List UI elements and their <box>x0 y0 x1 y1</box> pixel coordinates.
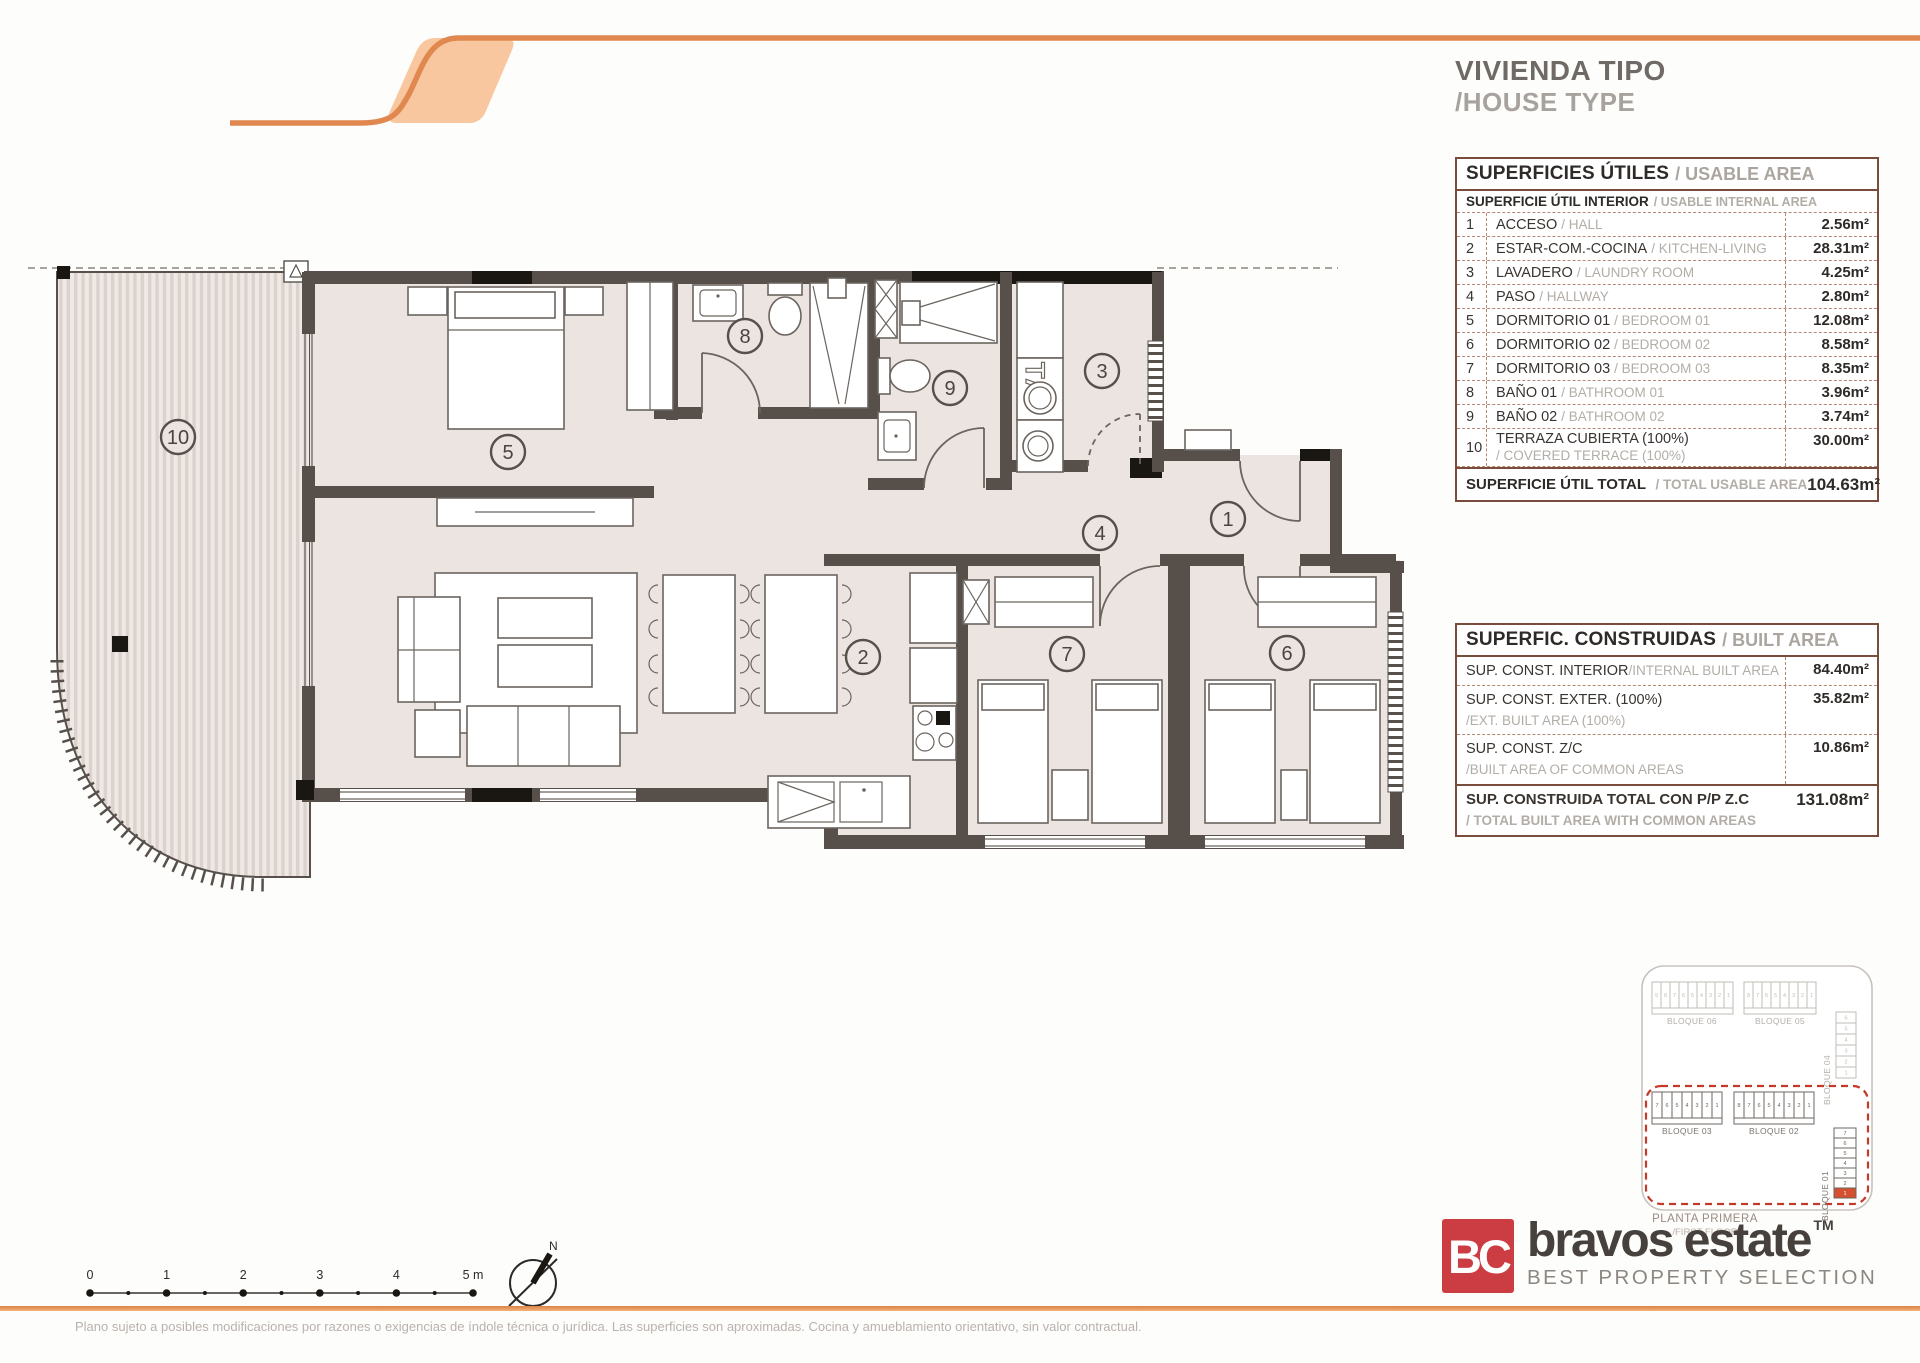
svg-text:9: 9 <box>1655 993 1658 999</box>
compass-icon: N <box>509 1239 558 1306</box>
svg-text:9: 9 <box>944 378 955 400</box>
table-row: 1 ACCESO/ HALL 2.56m² <box>1457 213 1877 237</box>
svg-text:4: 4 <box>1685 1103 1688 1109</box>
svg-text:5: 5 <box>1691 993 1694 999</box>
svg-text:1: 1 <box>1715 1103 1718 1109</box>
svg-text:6: 6 <box>1765 993 1768 999</box>
title-en: /HOUSE TYPE <box>1455 87 1666 118</box>
svg-text:6: 6 <box>1843 1141 1846 1147</box>
svg-text:4: 4 <box>1094 523 1105 545</box>
svg-text:BLOQUE 03: BLOQUE 03 <box>1662 1126 1712 1136</box>
svg-text:3: 3 <box>1843 1171 1846 1177</box>
svg-text:BLOQUE 04: BLOQUE 04 <box>1822 1055 1832 1105</box>
svg-text:10: 10 <box>167 427 189 449</box>
svg-text:8: 8 <box>1664 993 1667 999</box>
room-badge-9: 9 <box>933 371 967 405</box>
room-badge-4: 4 <box>1083 516 1117 550</box>
svg-text:5: 5 <box>502 442 513 464</box>
brand-swoosh-icon <box>230 38 1920 123</box>
svg-text:7: 7 <box>1061 644 1072 666</box>
svg-text:3: 3 <box>316 1268 323 1282</box>
svg-text:3: 3 <box>1844 1049 1847 1055</box>
svg-text:4: 4 <box>1843 1161 1846 1167</box>
svg-text:0: 0 <box>87 1268 94 1282</box>
svg-text:2: 2 <box>1797 1103 1800 1109</box>
svg-text:2: 2 <box>1705 1103 1708 1109</box>
built-total-row: SUP. CONSTRUIDA TOTAL CON P/P Z.C/ TOTAL… <box>1457 784 1877 835</box>
disclaimer-text: Plano sujeto a posibles modificaciones p… <box>75 1319 1142 1334</box>
svg-text:1: 1 <box>1810 993 1813 999</box>
svg-text:7: 7 <box>1655 1103 1658 1109</box>
svg-text:2: 2 <box>240 1268 247 1282</box>
room-badge-5: 5 <box>491 435 525 469</box>
svg-text:1: 1 <box>1727 993 1730 999</box>
svg-text:7: 7 <box>1747 1103 1750 1109</box>
room-badge-6: 6 <box>1270 636 1304 670</box>
usable-total-value: 104.63m² <box>1807 475 1888 495</box>
svg-text:4: 4 <box>1844 1038 1847 1044</box>
svg-text:1: 1 <box>1843 1191 1846 1197</box>
svg-text:4: 4 <box>1700 993 1703 999</box>
table-row: SUP. CONST. EXTER. (100%)/EXT. BUILT ARE… <box>1457 686 1877 736</box>
svg-text:6: 6 <box>1665 1103 1668 1109</box>
bedroom02-window <box>1388 612 1403 792</box>
svg-text:3: 3 <box>1695 1103 1698 1109</box>
svg-text:BLOQUE 02: BLOQUE 02 <box>1749 1126 1799 1136</box>
svg-text:7: 7 <box>1673 993 1676 999</box>
entry-doormat <box>1185 430 1231 450</box>
svg-text:2: 2 <box>1801 993 1804 999</box>
bedroom01-furniture <box>408 282 673 429</box>
table-row: 8 BAÑO 01/ BATHROOM 01 3.96m² <box>1457 381 1877 405</box>
svg-text:5: 5 <box>1844 1027 1847 1033</box>
svg-text:5: 5 <box>1767 1103 1770 1109</box>
svg-text:3: 3 <box>1787 1103 1790 1109</box>
table-row: 9 BAÑO 02/ BATHROOM 02 3.74m² <box>1457 405 1877 429</box>
usable-table-subheader: SUPERFICIE ÚTIL INTERIOR / USABLE INTERN… <box>1457 191 1877 213</box>
brand-logo: BC bravos estate TM BEST PROPERTY SELECT… <box>1442 1219 1877 1293</box>
table-row: SUP. CONST. INTERIOR/INTERNAL BUILT AREA… <box>1457 657 1877 686</box>
svg-text:N: N <box>549 1239 558 1253</box>
svg-text:1: 1 <box>1844 1071 1847 1077</box>
title-es: VIVIENDA TIPO <box>1455 54 1666 87</box>
svg-text:6: 6 <box>1682 993 1685 999</box>
svg-text:8: 8 <box>739 326 750 348</box>
plan-sheet: TA <box>0 0 1920 1363</box>
sheet-title: VIVIENDA TIPO /HOUSE TYPE <box>1455 54 1666 118</box>
table-row: 2 ESTAR-COM.-COCINA/ KITCHEN-LIVING 28.3… <box>1457 237 1877 261</box>
svg-text:2: 2 <box>1844 1060 1847 1066</box>
brand-name: bravos estate <box>1527 1219 1811 1263</box>
svg-text:BLOQUE 06: BLOQUE 06 <box>1667 1016 1717 1026</box>
svg-text:7: 7 <box>1843 1131 1846 1137</box>
svg-text:BLOQUE 05: BLOQUE 05 <box>1755 1016 1805 1026</box>
trademark-symbol: TM <box>1814 1217 1834 1233</box>
table-row: 5 DORMITORIO 01/ BEDROOM 01 12.08m² <box>1457 309 1877 333</box>
svg-text:8: 8 <box>1737 1103 1740 1109</box>
terrace <box>57 261 310 885</box>
svg-text:6: 6 <box>1757 1103 1760 1109</box>
svg-text:3: 3 <box>1709 993 1712 999</box>
svg-text:2: 2 <box>1843 1181 1846 1187</box>
laundry-fixtures: TA <box>1017 282 1063 472</box>
built-area-table: SUPERFIC. CONSTRUIDAS / BUILT AREA SUP. … <box>1455 623 1879 837</box>
svg-text:8: 8 <box>1747 993 1750 999</box>
room-badge-3: 3 <box>1085 354 1119 388</box>
svg-text:7: 7 <box>1756 993 1759 999</box>
svg-text:4: 4 <box>1777 1103 1780 1109</box>
room-badge-10: 10 <box>161 420 195 454</box>
table-row: 4 PASO/ HALLWAY 2.80m² <box>1457 285 1877 309</box>
svg-text:5: 5 <box>1774 993 1777 999</box>
built-table-header: SUPERFIC. CONSTRUIDAS / BUILT AREA <box>1457 625 1877 657</box>
table-row: SUP. CONST. Z/C/BUILT AREA OF COMMON ARE… <box>1457 735 1877 784</box>
built-total-value: 131.08m² <box>1785 786 1877 835</box>
svg-text:3: 3 <box>1792 993 1795 999</box>
svg-text:4: 4 <box>393 1268 400 1282</box>
louver-window <box>1148 341 1163 421</box>
svg-text:6: 6 <box>1844 1016 1847 1022</box>
scale-bar: 0 1 2 3 4 5 m <box>86 1268 483 1297</box>
usable-table-header: SUPERFICIES ÚTILES / USABLE AREA <box>1457 159 1877 191</box>
room-badge-8: 8 <box>728 319 762 353</box>
usable-area-table: SUPERFICIES ÚTILES / USABLE AREA SUPERFI… <box>1455 157 1879 502</box>
svg-text:6: 6 <box>1281 643 1292 665</box>
brand-monogram-icon: BC <box>1442 1219 1514 1293</box>
room-badge-1: 1 <box>1211 502 1245 536</box>
table-row: 6 DORMITORIO 02/ BEDROOM 02 8.58m² <box>1457 333 1877 357</box>
table-row: 7 DORMITORIO 03/ BEDROOM 03 8.35m² <box>1457 357 1877 381</box>
svg-text:1: 1 <box>1222 509 1233 531</box>
svg-text:1: 1 <box>163 1268 170 1282</box>
svg-text:4: 4 <box>1783 993 1786 999</box>
room-badge-2: 2 <box>846 640 880 674</box>
svg-text:BLOQUE 01: BLOQUE 01 <box>1820 1171 1830 1221</box>
usable-total-row: SUPERFICIE ÚTIL TOTAL / TOTAL USABLE ARE… <box>1457 467 1877 500</box>
room-badge-7: 7 <box>1050 637 1084 671</box>
svg-text:5 m: 5 m <box>463 1268 484 1282</box>
svg-text:2: 2 <box>857 647 868 669</box>
svg-text:2: 2 <box>1718 993 1721 999</box>
block-locator: 987654321 BLOQUE 06 87654321 BLOQUE 05 6… <box>1642 966 1872 1221</box>
svg-text:3: 3 <box>1096 361 1107 383</box>
svg-text:1: 1 <box>1807 1103 1810 1109</box>
svg-text:5: 5 <box>1675 1103 1678 1109</box>
footer-rule <box>0 1306 1920 1311</box>
svg-text:5: 5 <box>1843 1151 1846 1157</box>
table-row: 3 LAVADERO/ LAUNDRY ROOM 4.25m² <box>1457 261 1877 285</box>
table-row: 10 TERRAZA CUBIERTA (100%) / COVERED TER… <box>1457 429 1877 467</box>
brand-tagline: BEST PROPERTY SELECTION <box>1527 1266 1877 1290</box>
